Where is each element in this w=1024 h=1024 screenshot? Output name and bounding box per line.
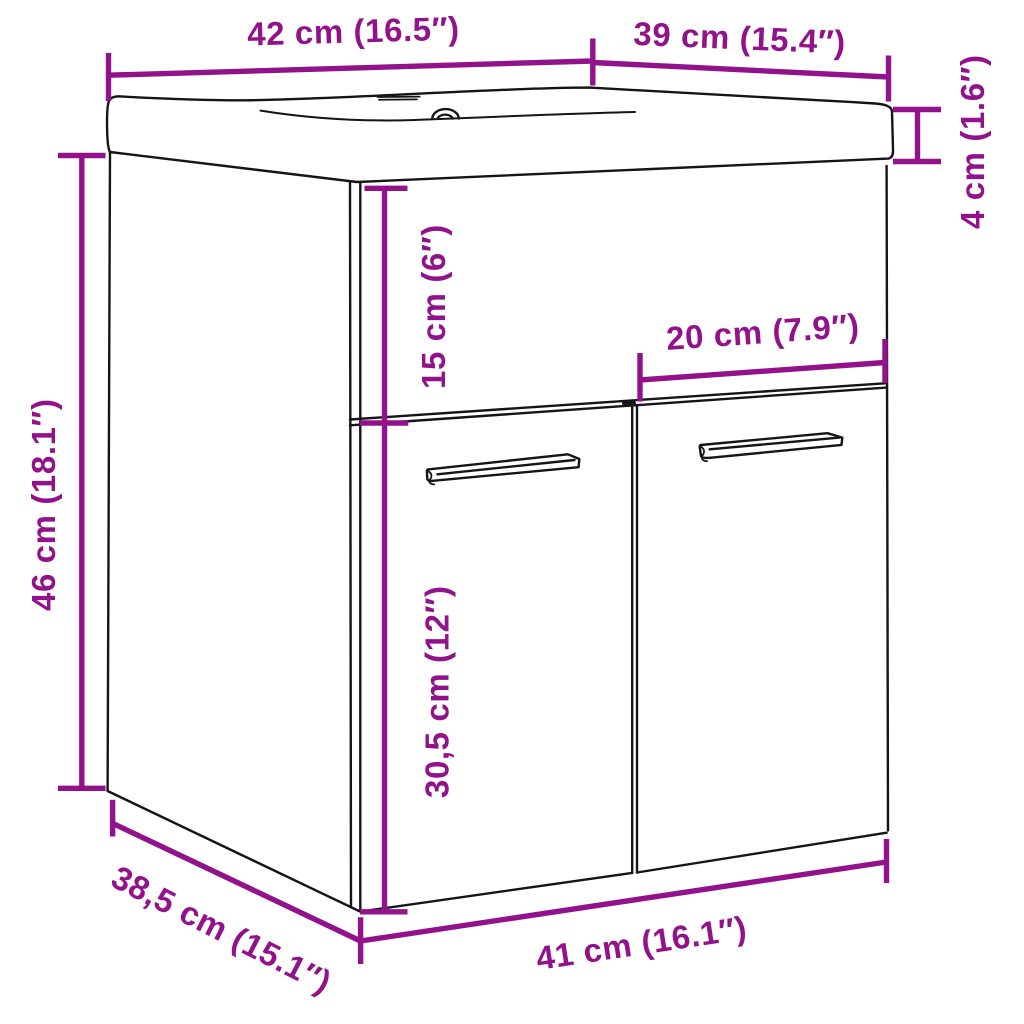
svg-text:30,5 cm (12″): 30,5 cm (12″) [419, 585, 456, 798]
svg-text:4 cm (1.6″): 4 cm (1.6″) [954, 54, 991, 229]
svg-text:42 cm (16.5″): 42 cm (16.5″) [247, 10, 461, 53]
svg-text:46 cm (18.1″): 46 cm (18.1″) [25, 398, 62, 611]
svg-text:15 cm (6″): 15 cm (6″) [415, 224, 452, 389]
